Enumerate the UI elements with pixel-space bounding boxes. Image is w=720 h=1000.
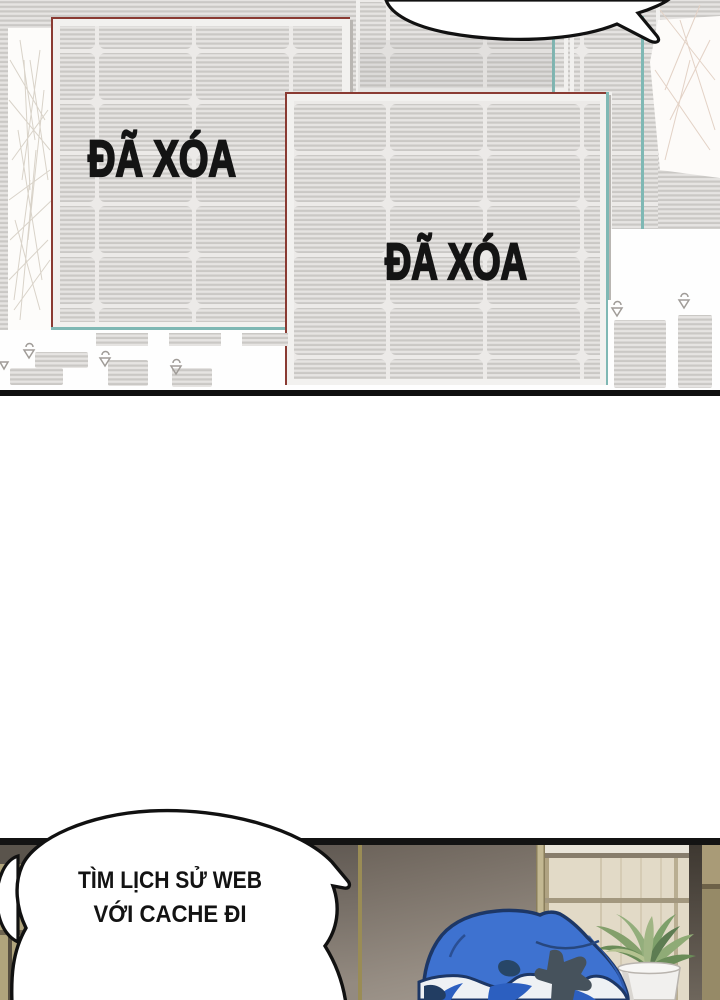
svg-text:ĐÃ XÓA: ĐÃ XÓA <box>88 129 236 187</box>
svg-text:VỚI CACHE ĐI: VỚI CACHE ĐI <box>94 900 247 928</box>
svg-text:TÌM LỊCH SỬ WEB: TÌM LỊCH SỬ WEB <box>78 865 262 894</box>
svg-text:ĐÃ XÓA: ĐÃ XÓA <box>385 232 527 290</box>
